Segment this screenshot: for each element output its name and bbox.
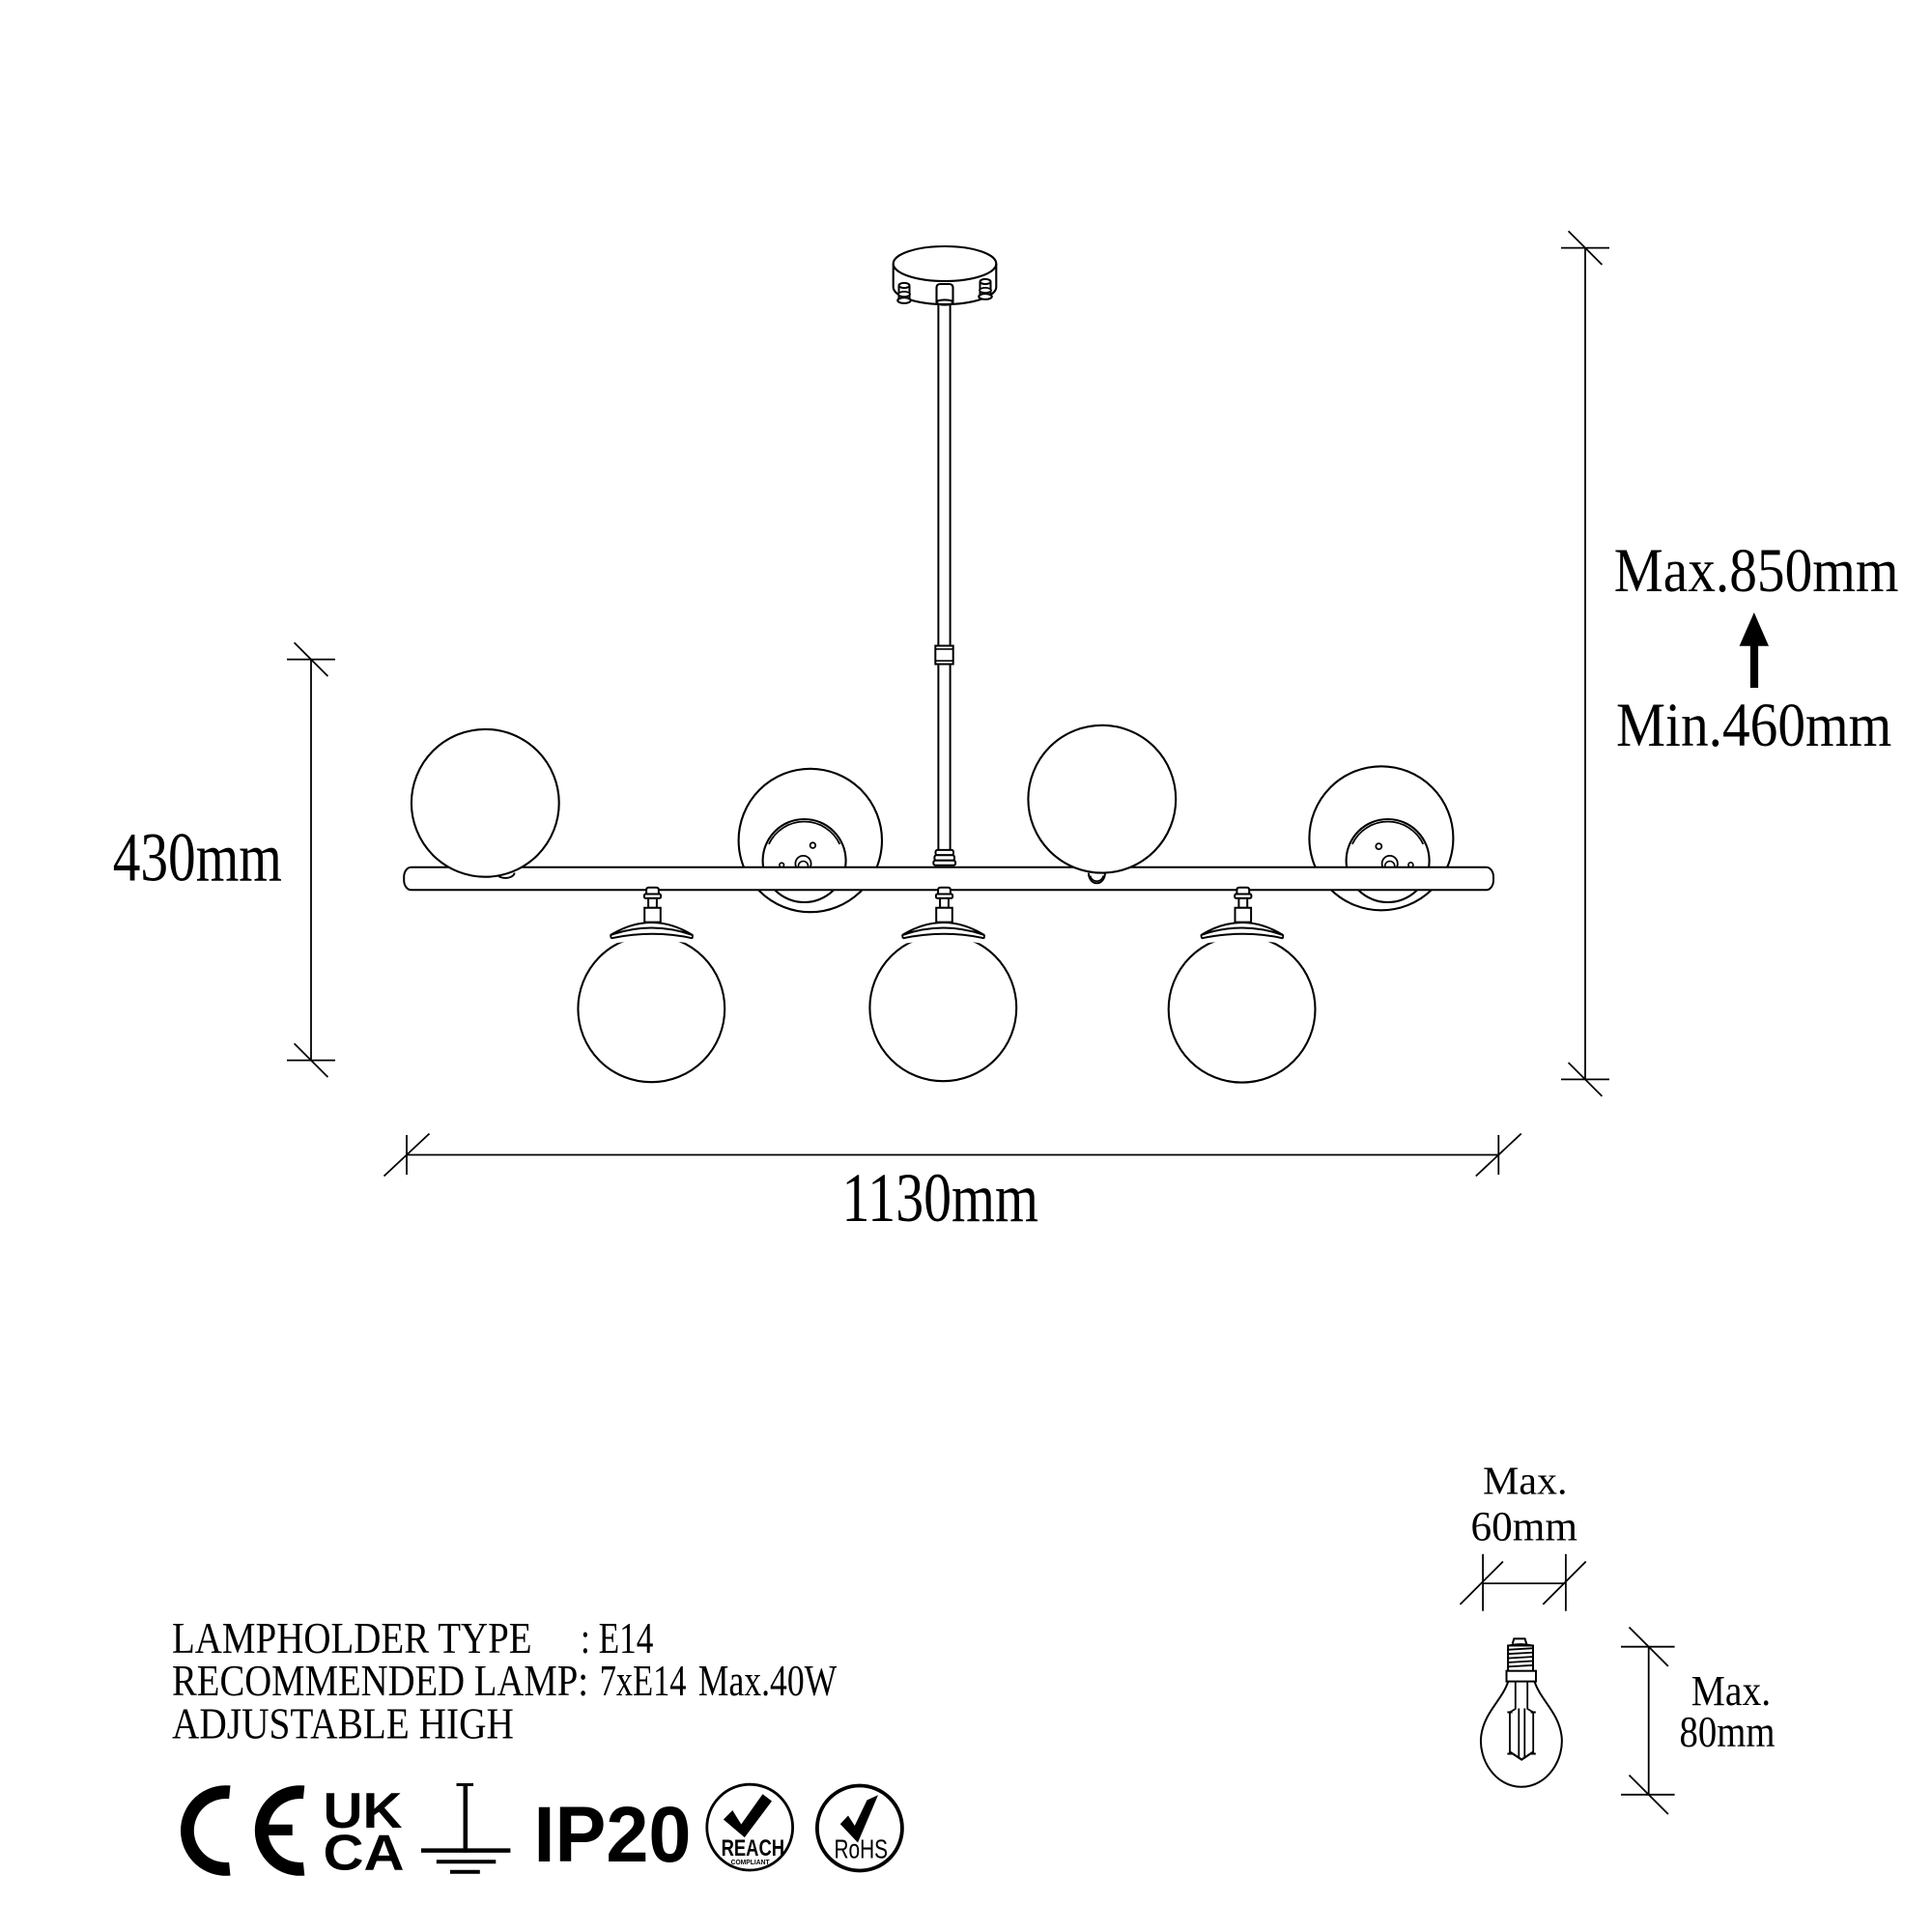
svg-text:Max.: Max. <box>1483 1459 1568 1503</box>
svg-text:COMPLIANT: COMPLIANT <box>731 1858 770 1866</box>
svg-text:CA: CA <box>324 1825 405 1881</box>
svg-text:ADJUSTABLE HIGH: ADJUSTABLE HIGH <box>172 1698 514 1747</box>
svg-text:80mm: 80mm <box>1680 1707 1776 1756</box>
svg-text:1130mm: 1130mm <box>842 1159 1039 1236</box>
svg-text:Max.850mm: Max.850mm <box>1614 536 1899 606</box>
svg-text:7xE14: 7xE14 <box>600 1656 687 1705</box>
svg-text:RoHS: RoHS <box>835 1834 889 1864</box>
svg-text:60mm: 60mm <box>1471 1503 1578 1549</box>
svg-text:Min.460mm: Min.460mm <box>1616 691 1891 759</box>
svg-text:430mm: 430mm <box>113 819 282 895</box>
svg-text:Max.40W: Max.40W <box>698 1656 838 1705</box>
svg-text:IP20: IP20 <box>534 1791 692 1879</box>
